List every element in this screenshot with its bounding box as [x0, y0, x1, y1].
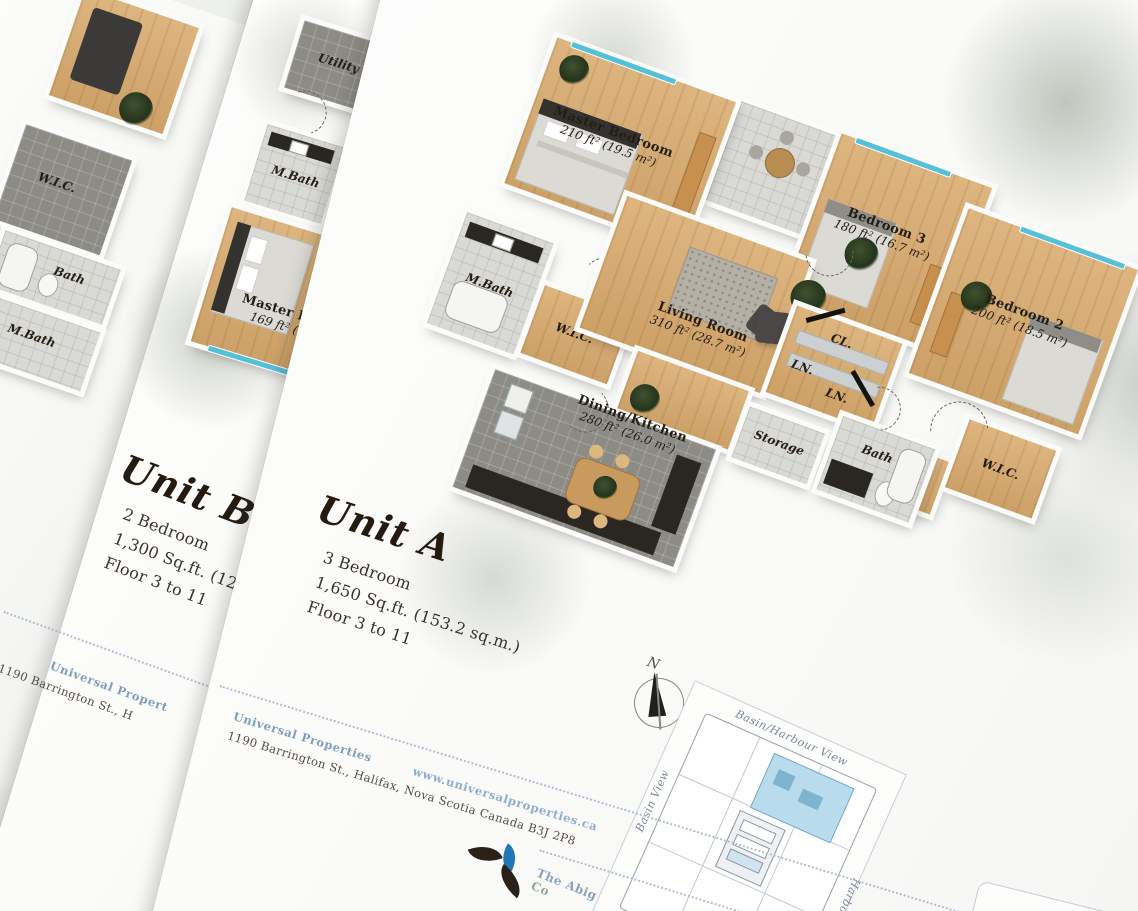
- door-swing: [563, 387, 609, 433]
- patio-chair: [778, 129, 796, 147]
- photo-stage: W.I.C. Bath M.Bath Utility Bath M.Bath: [0, 0, 1138, 911]
- room-back-livingroom: [49, 0, 199, 134]
- brand-text: The Abig Co: [529, 866, 599, 911]
- patio-chair: [794, 160, 812, 178]
- dresser: [670, 132, 716, 219]
- dining-chair: [587, 443, 605, 461]
- sofa: [69, 7, 143, 96]
- sink: [503, 383, 534, 414]
- dining-chair: [613, 452, 631, 470]
- plant: [114, 88, 157, 131]
- patio-table: [761, 144, 799, 182]
- compass-north-label: N: [645, 654, 662, 673]
- vanity: [823, 459, 873, 498]
- bathtub: [0, 240, 41, 294]
- kitchen-island: [651, 454, 701, 534]
- brand-logo: [454, 833, 540, 911]
- logo-leaf-dark-left: [468, 839, 503, 868]
- patio-chair: [747, 143, 765, 161]
- panel-fragment: [931, 880, 1138, 911]
- plant: [555, 51, 593, 89]
- stove: [494, 410, 525, 441]
